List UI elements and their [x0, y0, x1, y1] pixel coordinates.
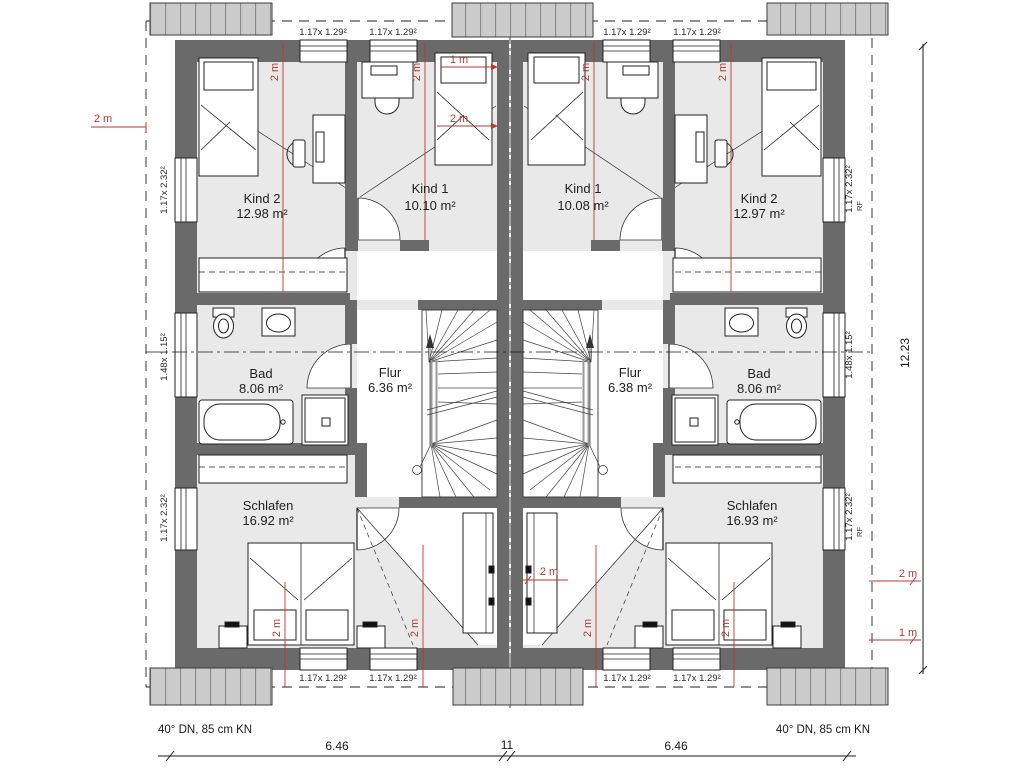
window-labels-left-side: 1.17x 2.32² 1.48x 1.15² 1.17x 2.32² — [159, 166, 170, 542]
window-label: 1.17x 2.32² — [159, 494, 170, 542]
window-label: 1.17x 1.29² — [673, 673, 721, 684]
room-name-bad-right: Bad — [747, 366, 770, 381]
room-name-bad-left: Bad — [249, 366, 272, 381]
window-label: 1.17x 2.32² — [844, 493, 855, 541]
right-unit — [511, 40, 845, 670]
room-name-kind2-left: Kind 2 — [244, 191, 281, 206]
floorplan-canvas: Kind 2 12.98 m² Kind 1 10.10 m² Bad 8.06… — [0, 0, 1024, 768]
room-name-flur-left: Flur — [379, 365, 402, 380]
window-label: 1.17x 1.29² — [603, 673, 651, 684]
window-label: 1.17x 1.29² — [603, 27, 651, 38]
red-2m-label: 2 m — [899, 568, 917, 580]
window-label: 1.17x 1.29² — [369, 27, 417, 38]
window-label: 1.17x 2.32² — [159, 166, 170, 214]
room-area-schlafen-left: 16.92 m² — [242, 513, 294, 528]
room-name-kind1-left: Kind 1 — [412, 181, 449, 196]
dim-party-gap: 11 — [501, 738, 514, 752]
window-label: 1.17x 1.29² — [673, 27, 721, 38]
red-2m-label: 2 m — [450, 113, 468, 125]
room-name-flur-right: Flur — [619, 365, 642, 380]
window-label: 1.17x 1.29² — [299, 673, 347, 684]
window-label: 1.48x 1.15² — [159, 333, 170, 381]
red-2m-label: 2 m — [717, 63, 729, 81]
red-1m-label: 1 m — [450, 54, 468, 66]
room-area-flur-left: 6.36 m² — [368, 380, 413, 395]
red-2m-label: 2 m — [411, 63, 423, 81]
red-2m-label: 2 m — [269, 63, 281, 81]
window-label: 1.48x 1.15² — [844, 331, 855, 379]
roof-note-right: 40° DN, 85 cm KN — [776, 724, 870, 736]
red-2m-label: 2 m — [582, 619, 594, 637]
room-area-flur-right: 6.38 m² — [608, 380, 653, 395]
red-2m-label: 2 m — [540, 566, 558, 578]
room-name-kind2-right: Kind 2 — [741, 191, 778, 206]
rf-mark: RF — [855, 201, 864, 211]
room-area-schlafen-right: 16.93 m² — [726, 513, 778, 528]
room-name-schlafen-left: Schlafen — [243, 498, 294, 513]
left-unit — [175, 40, 509, 670]
room-name-schlafen-right: Schlafen — [727, 498, 778, 513]
red-1m-label: 1 m — [899, 627, 917, 639]
rf-mark: RF — [855, 527, 864, 537]
dim-width-left: 6.46 — [325, 739, 349, 753]
red-2m-label: 2 m — [271, 619, 283, 637]
roof-note-left: 40° DN, 85 cm KN — [158, 724, 252, 736]
red-2m-label: 2 m — [580, 63, 592, 81]
room-area-bad-right: 8.06 m² — [737, 381, 782, 396]
red-2m-label: 2 m — [409, 619, 421, 637]
window-label: 1.17x 1.29² — [299, 27, 347, 38]
dim-total-height: 12.23 — [898, 338, 912, 368]
window-label: 1.17x 1.29² — [369, 673, 417, 684]
window-label: 1.17x 2.32² — [844, 165, 855, 213]
room-area-bad-left: 8.06 m² — [239, 381, 284, 396]
room-area-kind2-left: 12.98 m² — [236, 206, 288, 221]
room-name-kind1-right: Kind 1 — [565, 181, 602, 196]
room-area-kind2-right: 12.97 m² — [733, 206, 785, 221]
red-2m-label: 2 m — [94, 113, 112, 125]
room-area-kind1-left: 10.10 m² — [404, 198, 456, 213]
room-area-kind1-right: 10.08 m² — [557, 198, 609, 213]
window-labels-right-side: 1.17x 2.32² RF 1.48x 1.15² 1.17x 2.32² R… — [844, 165, 864, 541]
roof-notes: 40° DN, 85 cm KN 40° DN, 85 cm KN — [158, 724, 870, 736]
red-2m-label: 2 m — [720, 619, 732, 637]
floorplan-page: Kind 2 12.98 m² Kind 1 10.10 m² Bad 8.06… — [0, 0, 1024, 768]
dim-width-right: 6.46 — [664, 739, 688, 753]
